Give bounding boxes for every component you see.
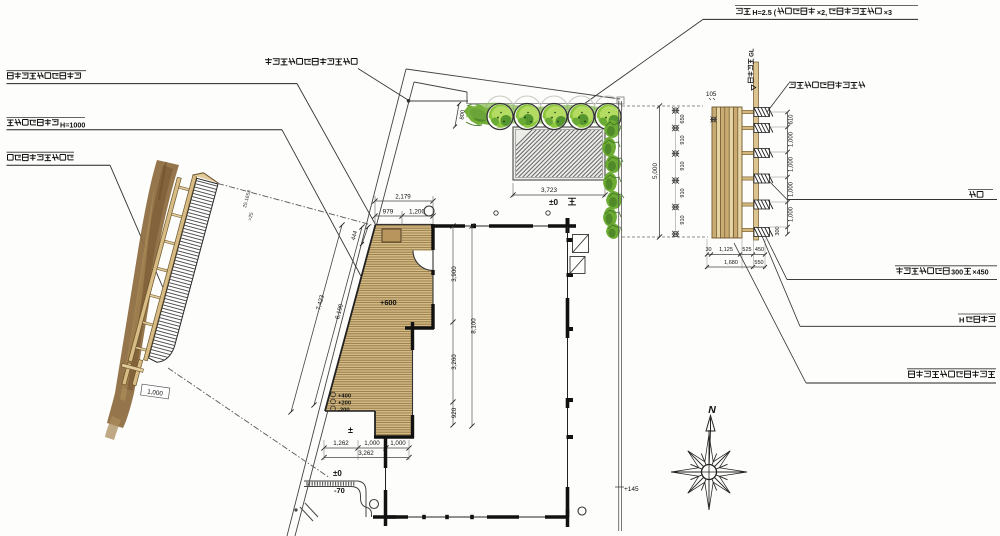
svg-text:910: 910 — [680, 161, 686, 170]
svg-text:±: ± — [348, 425, 353, 435]
svg-text:1,125: 1,125 — [719, 247, 733, 253]
svg-text:300: 300 — [951, 268, 963, 277]
svg-text:105: 105 — [706, 91, 717, 98]
svg-text:1,000: 1,000 — [364, 440, 380, 447]
svg-text:610: 610 — [789, 114, 795, 125]
svg-text:1,000: 1,000 — [789, 131, 795, 147]
svg-text:-70: -70 — [334, 486, 345, 495]
svg-text:800: 800 — [459, 110, 466, 120]
svg-text:920: 920 — [451, 407, 458, 418]
svg-text:+200: +200 — [338, 401, 351, 407]
svg-text:-200: -200 — [338, 408, 350, 414]
svg-text:550: 550 — [754, 260, 763, 266]
svg-text:5,000: 5,000 — [652, 163, 659, 179]
svg-text:910: 910 — [680, 135, 686, 144]
svg-text:×3: ×3 — [884, 8, 892, 17]
svg-text:1,000: 1,000 — [789, 206, 795, 222]
svg-text:525: 525 — [742, 247, 751, 253]
svg-text:2,179: 2,179 — [395, 194, 411, 201]
svg-text:1,000: 1,000 — [390, 440, 406, 447]
svg-text:N: N — [708, 404, 716, 416]
svg-text:30: 30 — [705, 247, 711, 253]
svg-text:979: 979 — [383, 209, 394, 216]
svg-text:+400: +400 — [338, 394, 351, 400]
svg-text:1,680: 1,680 — [724, 260, 738, 266]
svg-text:×2,: ×2, — [817, 8, 827, 17]
svg-text:+600: +600 — [380, 298, 397, 307]
svg-text:450: 450 — [755, 247, 764, 253]
svg-text:1,262: 1,262 — [333, 440, 349, 447]
svg-text:650: 650 — [680, 114, 686, 123]
svg-text:H: H — [959, 316, 964, 325]
svg-text:300: 300 — [775, 226, 781, 235]
svg-text:±0: ±0 — [333, 469, 342, 478]
svg-text:3,723: 3,723 — [541, 187, 557, 194]
svg-text:1,000: 1,000 — [789, 181, 795, 197]
svg-text:1,000: 1,000 — [789, 156, 795, 172]
svg-text:×450: ×450 — [972, 268, 988, 277]
svg-text:±0: ±0 — [549, 198, 558, 207]
svg-text:1,200: 1,200 — [409, 209, 425, 216]
svg-text:H=1000: H=1000 — [60, 120, 85, 129]
svg-text:8,100: 8,100 — [471, 318, 478, 334]
svg-text:910: 910 — [680, 188, 686, 197]
svg-text:910: 910 — [680, 215, 686, 224]
svg-text:+145: +145 — [624, 486, 639, 493]
svg-text:GL: GL — [750, 48, 756, 57]
svg-text:3,262: 3,262 — [358, 450, 374, 457]
svg-text:3,260: 3,260 — [451, 354, 458, 370]
svg-text:H=2.5 (: H=2.5 ( — [752, 8, 776, 17]
svg-text:3,900: 3,900 — [451, 266, 458, 282]
